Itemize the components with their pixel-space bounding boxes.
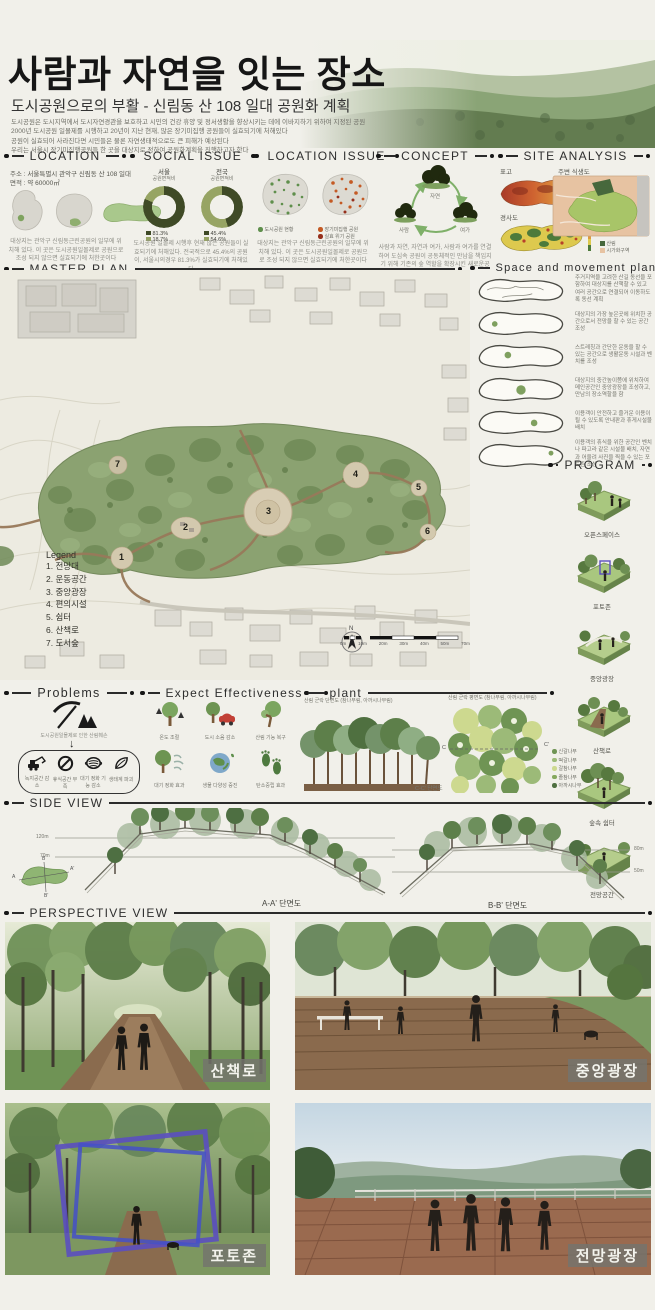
program-item: 포토존 [562,542,642,611]
problems-heading: Problems [4,686,134,700]
bullet [498,154,503,159]
bullet [548,463,553,468]
leaf-icon [113,755,130,772]
seoul-park-map: 도시공원 현황 [258,170,312,233]
social-issue-heading-label: SOCIAL ISSUE [141,149,246,163]
bullet [550,691,555,696]
donut-ring [143,186,185,228]
perspective-heading-label: PERSPECTIVE VIEW [27,906,172,920]
bullet [130,691,135,696]
legend-swatch [600,241,605,246]
site-analysis-heading: SITE ANALYSIS [498,149,650,163]
legend-swatch [600,248,605,253]
vegetation-legend: 산림 시가화구역 [600,240,630,254]
globe-icon [205,748,235,778]
bullet [4,154,9,159]
perspective-image-overlook: 전망광장 [295,1103,651,1275]
plan-legend-item: 2. 운동공간 [46,573,87,586]
elevation-label-a1: 120m [36,834,49,840]
page-title: 사람과 자연을 잇는 장소 [8,44,386,98]
inset-label-a2: A' [70,866,74,872]
forest-plan-view [448,705,542,798]
program-thumb-openspace [570,470,634,524]
concept-node-leisure: 여가 [460,226,470,234]
description-line: 공원이 실효되어 사라진다면 시민들은 물론 자연생태적으로도 큰 피해가 예상… [11,137,431,146]
location-issue-heading: LOCATION ISSUE [254,149,372,163]
movement-row: 스트레칭과 간단한 운동을 할 수 있는 공간으로 생활운동 시설과 벤치를 조… [472,340,654,371]
deforestation-icon [50,700,98,737]
image-caption-badge: 산책로 [203,1059,266,1082]
concept-node-people: 사람 [399,226,409,234]
donut-chart-national: 전국 공원면적비 45.4% 54.6% [196,166,248,243]
perspective-image-plaza: 중앙광장 [295,922,651,1090]
plan-marker-1: 1 [119,552,124,562]
mask-icon [83,755,104,771]
legend-swatch [318,227,323,232]
movement-diagram [472,275,570,305]
program-label: 오픈스페이스 [562,529,642,539]
location-caption: 대상지는 관악구 신림동근린공원의 일부에 위치해 있다. 이 곳은 도시공원일… [8,238,124,264]
bullet [140,691,145,696]
description-line: 도시공원은 도시지역에서 도시자연경관을 보호하고 시민의 건강 휴양 및 정서… [11,118,431,127]
tree-car-icon [203,700,237,730]
bullet [648,801,653,806]
effect-restloss: 휴식공간 부족 [52,755,78,790]
bullet [376,154,381,159]
concept-heading: CONCEPT [376,149,494,163]
map-legend-item: 도시공원 현황 [258,226,312,233]
problem-effects: 녹지공간 감소 휴식공간 부족 대기 정화 기능 감소 생태계 파괴 [18,750,140,794]
rule [12,155,24,156]
legend-swatch [258,227,263,232]
bullet [490,154,495,159]
effect-airloss: 대기 정화 기능 감소 [80,755,106,790]
effectiveness-heading: Expect Effectiveness [140,686,300,700]
social-issue-heading: SOCIAL ISSUE [130,149,250,163]
rule [12,912,24,913]
effect-ecoloss: 생태계 파괴 [108,755,134,790]
plan-marker-4: 4 [353,469,358,479]
inset-label-b2: B' [44,893,48,899]
cut-label-c2: C' [544,742,549,748]
plant-section-caption: C-C' 단면도 [415,786,443,793]
rule [174,912,644,913]
plan-legend-item: 7. 도서숲 [46,637,87,650]
program-label: 포토존 [562,601,642,611]
plan-marker-5: 5 [416,482,421,492]
inset-label-b: B [42,856,45,862]
vegetation-map [552,175,650,242]
description-line: 2000년 도시공원 일몰제를 시행하고 20년이 지난 현재, 많은 장기미집… [11,127,431,136]
bullet [4,691,9,696]
rule [475,155,487,156]
plan-legend-item: 3. 중앙광장 [46,586,87,599]
image-caption-badge: 중앙광장 [568,1059,647,1082]
effect-greenloss: 녹지공간 감소 [24,755,50,790]
bullet [646,154,651,159]
legend-swatch [204,231,209,236]
effect-caption: 도시 소음 감소 [195,735,246,742]
rule [12,802,24,803]
rule [107,692,127,693]
concept-heading-label: CONCEPT [398,149,472,163]
location-issue-heading-label: LOCATION ISSUE [265,149,389,163]
movement-diagram [472,341,570,371]
concept-diagram [384,164,504,247]
plan-legend-item: 4. 편의시설 [46,598,87,611]
movement-text: 대상지의 중간높이쯤에 위치하여 메인공간인 중앙광장을 조성하고, 만남의 장… [575,378,653,399]
perspective-image-walkway: 산책로 [5,922,270,1090]
bullet [130,154,135,159]
footprint-icon [256,748,286,778]
concept-node-nature: 자연 [430,192,440,200]
legend-swatch [318,234,323,239]
tree-restore-icon [256,700,286,730]
elevation-label-b2: 50m [634,868,644,874]
space-movement-heading-label: Space and movement plan [493,262,655,274]
effect-item-bio: 생물 다양성 증진 [195,748,246,790]
plant-section-title: 산림 군락 단면도 (참나무림, 아까시나무림) [304,698,394,705]
bullet [304,691,309,696]
rule [106,155,118,156]
location-area: 면적 : 약 60000㎡ [10,177,60,187]
chart-region-label: 서울 [138,166,190,176]
effect-label: 녹지공간 감소 [24,776,50,789]
prohibition-icon [57,755,74,772]
program-label: 중앙광장 [562,673,642,683]
legend-swatch [552,749,557,754]
seoul-map [52,190,96,237]
movement-row: 이용객이 안전하고 즐거운 이용이 될 수 있도록 안내판과 휴게시설물 배치 [472,406,654,437]
program-thumb-trail [570,686,634,740]
north-label: N [349,626,353,632]
image-caption-badge: 포토존 [203,1244,266,1267]
plan-marker-3: 3 [266,506,271,516]
plan-legend-item: 6. 산책로 [46,624,87,637]
scale-tick-labels: 0m10m 20m30m 40m50m 70m [340,641,470,646]
donut-chart-seoul: 서울 공원면적비 81.3% 18.7% [138,166,190,243]
section-aa [55,808,400,908]
rule [109,802,644,803]
problems-heading-label: Problems [34,686,103,700]
donut-ring [201,186,243,228]
effect-item-temp: 온도 조절 [144,700,195,742]
plan-marker-7: 7 [115,459,120,469]
program-item: 오픈스페이스 [562,470,642,539]
bullet [254,154,259,159]
space-movement-heading: Space and movement plan [470,262,652,274]
legend-swatch [552,775,557,780]
rule [634,155,643,156]
program-item: 산책로 [562,686,642,755]
rule [642,464,645,465]
plan-legend-item: 5. 쉼터 [46,611,87,624]
bullet [648,911,653,916]
bullet [122,154,127,159]
effect-caption: 생물 다양성 증진 [195,783,246,790]
plan-marker-6: 6 [425,526,430,536]
map-legend-item: 장기미집행 공원 실효 위기 공원 [318,226,372,240]
effect-item-noise: 도시 소음 감소 [195,700,246,742]
legend-swatch [552,758,557,763]
page-subtitle: 도시공원으로의 부활 - 신림동 산 108 일대 공원화 계획 [11,95,350,116]
bullet [4,911,9,916]
section-bb [382,806,632,911]
effectiveness-grid: 온도 조절 도시 소음 감소 산림 기능 복구 대기 정화 효과 [144,700,296,789]
movement-diagram [472,407,570,437]
effect-item-carbon: 탄소중립 효과 [245,748,296,790]
rule [368,692,546,693]
down-arrow-icon: ↓ [69,738,75,750]
plan-marker-2: 2 [183,522,188,532]
location-heading: LOCATION [4,149,126,163]
movement-row: 대상지의 가장 높은곳에 위치한 공간으로서 전망을 할 수 있는 공간 조성 [472,307,654,338]
rule [556,464,559,465]
program-item: 중앙광장 [562,614,642,683]
excavator-icon [26,755,48,771]
legend-swatch [552,783,557,788]
bullet [4,801,9,806]
seoul-risk-map: 장기미집행 공원 실효 위기 공원 [318,170,372,240]
rule [478,267,490,268]
rule [506,155,518,156]
effect-label: 생태계 파괴 [108,777,134,784]
plant-plan-title: 산림 군락 평면도 (참나무림, 아까시나무림) [448,695,538,702]
location-heading-label: LOCATION [27,149,104,163]
cut-label-c: C [442,745,446,751]
effect-caption: 온도 조절 [144,735,195,742]
effect-caption: 탄소중립 효과 [245,783,296,790]
movement-row: 대상지의 중간높이쯤에 위치하여 메인공간인 중앙광장을 조성하고, 만남의 장… [472,373,654,404]
rule [12,692,32,693]
legend-swatch [552,766,557,771]
tree-temp-icon [154,700,184,730]
elevation-label-b1: 80m [634,846,644,852]
movement-diagram [472,308,570,338]
program-thumb-photozone [570,542,634,596]
effect-label: 휴식공간 부족 [52,777,78,790]
plant-legend: 신갈나무 떡갈나무 갈참나무 졸참나무 아까시나무 [552,748,582,791]
effect-item-forest: 산림 기능 복구 [245,700,296,742]
movement-text: 주거지역을 고려한 산길 동선을 포함하여 대상지를 산책할 수 있고 여러 공… [575,275,653,304]
inset-label-a: A [12,874,15,880]
movement-text: 이용객이 안전하고 즐거운 이용이 될 수 있도록 안내판과 휴게시설물 배치 [575,411,653,432]
effect-caption: 대기 정화 효과 [144,783,195,790]
chart-metric-label: 공원면적비 [196,176,248,183]
rule [148,692,160,693]
movement-row: 주거지역을 고려한 산길 동선을 포함하여 대상지를 산책할 수 있고 여러 공… [472,274,654,305]
effect-caption: 산림 기능 복구 [245,735,296,742]
effect-item-air: 대기 정화 효과 [144,748,195,790]
movement-text: 대상지의 가장 높은곳에 위치한 공간으로서 전망을 할 수 있는 공간 조성 [575,312,653,333]
program-thumb-plaza [570,614,634,668]
rule [384,155,396,156]
bullet [648,463,653,468]
perspective-heading: PERSPECTIVE VIEW [4,906,652,920]
plan-legend-title: Legend [46,550,87,560]
image-caption-badge: 전망광장 [568,1244,647,1267]
legend-swatch [146,231,151,236]
plan-legend: Legend 1. 전망대 2. 운동공간 3. 중앙광장 4. 편의시설 5.… [46,550,87,649]
chart-metric-label: 공원면적비 [138,176,190,183]
poster-board: 사람과 자연을 잇는 장소 도시공원으로의 부활 - 신림동 산 108 일대 … [0,0,655,1310]
tree-air-icon [152,748,186,778]
space-movement-rows: 주거지역을 고려한 산길 동선을 포함하여 대상지를 산책할 수 있고 여러 공… [472,274,654,470]
korea-map [8,188,48,239]
bullet [470,266,475,271]
effect-label: 대기 정화 기능 감소 [80,776,106,789]
rule [312,692,324,693]
chart-region-label: 전국 [196,166,248,176]
effectiveness-heading-label: Expect Effectiveness [163,686,306,700]
plan-legend-item: 1. 전망대 [46,560,87,573]
movement-diagram [472,374,570,404]
perspective-image-photozone: 포토존 [5,1103,270,1275]
site-analysis-heading-label: SITE ANALYSIS [521,149,631,163]
movement-text: 스트레칭과 간단한 운동을 할 수 있는 공간으로 생활운동 시설과 벤치를 조… [575,345,653,366]
